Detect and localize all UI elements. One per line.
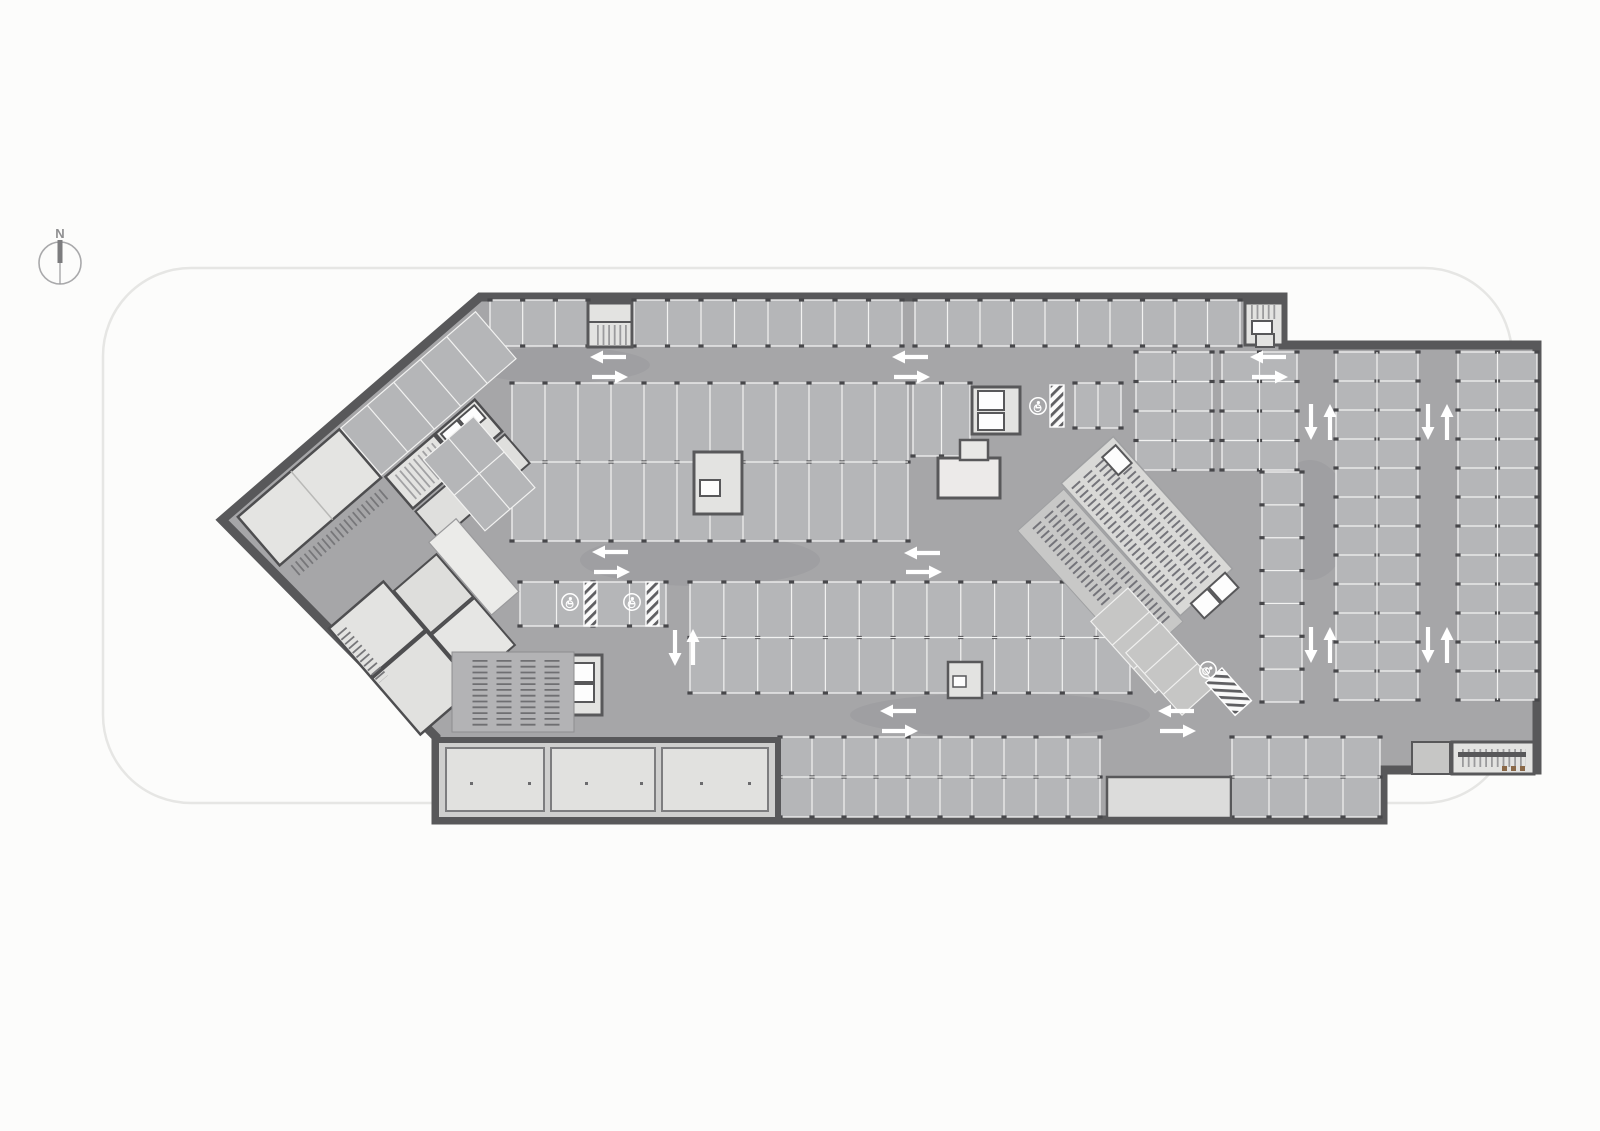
door-marker — [1502, 766, 1507, 771]
door-marker — [1520, 766, 1525, 771]
column-dot — [640, 782, 643, 785]
elevator-cab — [978, 391, 1004, 410]
parking-stall-block — [912, 298, 1242, 347]
door-marker — [1511, 766, 1516, 771]
no-parking-hatch — [1050, 385, 1064, 427]
technical-room — [446, 748, 544, 811]
lobby-room — [938, 458, 1000, 498]
north-compass: N — [39, 226, 81, 284]
parking-stall-block — [631, 298, 904, 347]
technical-room — [551, 748, 655, 811]
elevator-cab — [978, 413, 1004, 430]
parking-stall-block — [687, 580, 1132, 694]
column-dot — [748, 782, 751, 785]
shaft-room — [1412, 742, 1450, 774]
parking-stall-block — [777, 735, 1102, 818]
bike-room — [452, 652, 574, 732]
column-dot — [700, 782, 703, 785]
elevator-cab — [700, 480, 720, 496]
technical-room — [662, 748, 768, 811]
column-dot — [585, 782, 588, 785]
parking-stall-block — [487, 298, 590, 347]
parking-stall-block — [1229, 735, 1382, 818]
parking-stall-block — [1219, 350, 1299, 471]
parking-floor-plan: N — [0, 0, 1600, 1131]
storage-room — [1107, 777, 1231, 818]
parking-stall-block — [1259, 470, 1304, 703]
lobby-room — [960, 440, 988, 460]
stair-rail — [1458, 752, 1526, 757]
compass-label: N — [55, 226, 64, 241]
no-parking-hatch — [646, 582, 659, 626]
no-parking-hatch — [584, 582, 597, 626]
column-dot — [470, 782, 473, 785]
parking-floor-plan-page: N — [0, 0, 1600, 1131]
shaft — [953, 676, 966, 687]
parking-stall-block — [1333, 350, 1420, 701]
parking-stall-block — [1455, 350, 1539, 701]
stair-landing — [1256, 334, 1274, 347]
column-dot — [528, 782, 531, 785]
parking-stall-block — [1133, 350, 1214, 471]
parking-stall-block — [1072, 381, 1123, 429]
elevator-cab — [1252, 321, 1272, 334]
